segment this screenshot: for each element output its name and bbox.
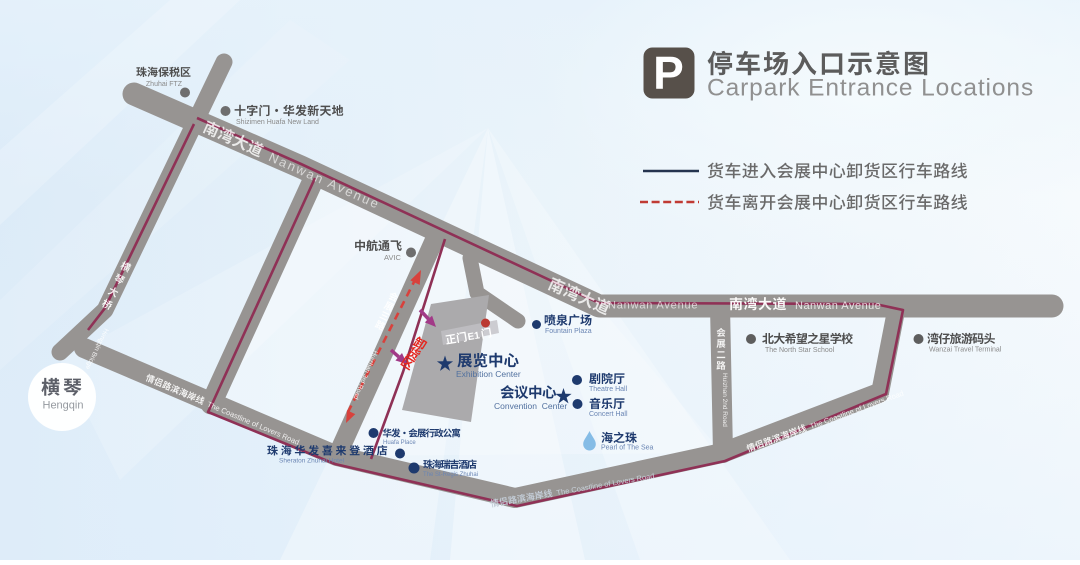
svg-text:The St-Regis Zhuhai: The St-Regis Zhuhai <box>423 472 478 478</box>
svg-text:Concert Hall: Concert Hall <box>589 411 628 418</box>
svg-text:Exhibition Center: Exhibition Center <box>456 369 521 379</box>
svg-text:Sheraton Zhuhai Hotel: Sheraton Zhuhai Hotel <box>279 458 345 465</box>
svg-text:Nanwan Avenue: Nanwan Avenue <box>608 300 698 312</box>
svg-text:Hengqin: Hengqin <box>43 400 84 412</box>
svg-text:P: P <box>653 47 684 99</box>
svg-text:Fountain Plaza: Fountain Plaza <box>545 328 592 335</box>
svg-text:Shizimen Huafa New Land: Shizimen Huafa New Land <box>236 119 319 126</box>
svg-text:Convention Center: Convention Center <box>494 401 567 411</box>
svg-text:Zhuhai FTZ: Zhuhai FTZ <box>146 81 183 88</box>
svg-text:Wanzai Travel Terminal: Wanzai Travel Terminal <box>929 347 1002 354</box>
svg-text:Huizhan 2nd Road: Huizhan 2nd Road <box>721 373 728 427</box>
svg-text:Carpark Entrance Locations: Carpark Entrance Locations <box>707 75 1034 102</box>
svg-text:Nanwan Avenue: Nanwan Avenue <box>795 300 881 312</box>
svg-text:AVIC: AVIC <box>384 253 402 262</box>
svg-text:E1: E1 <box>467 330 481 343</box>
svg-text:Theatre Hall: Theatre Hall <box>589 386 628 393</box>
svg-text:Huafa Place: Huafa Place <box>383 440 416 446</box>
svg-text:Pearl of The Sea: Pearl of The Sea <box>601 445 654 452</box>
svg-text:The North Star School: The North Star School <box>765 347 835 354</box>
